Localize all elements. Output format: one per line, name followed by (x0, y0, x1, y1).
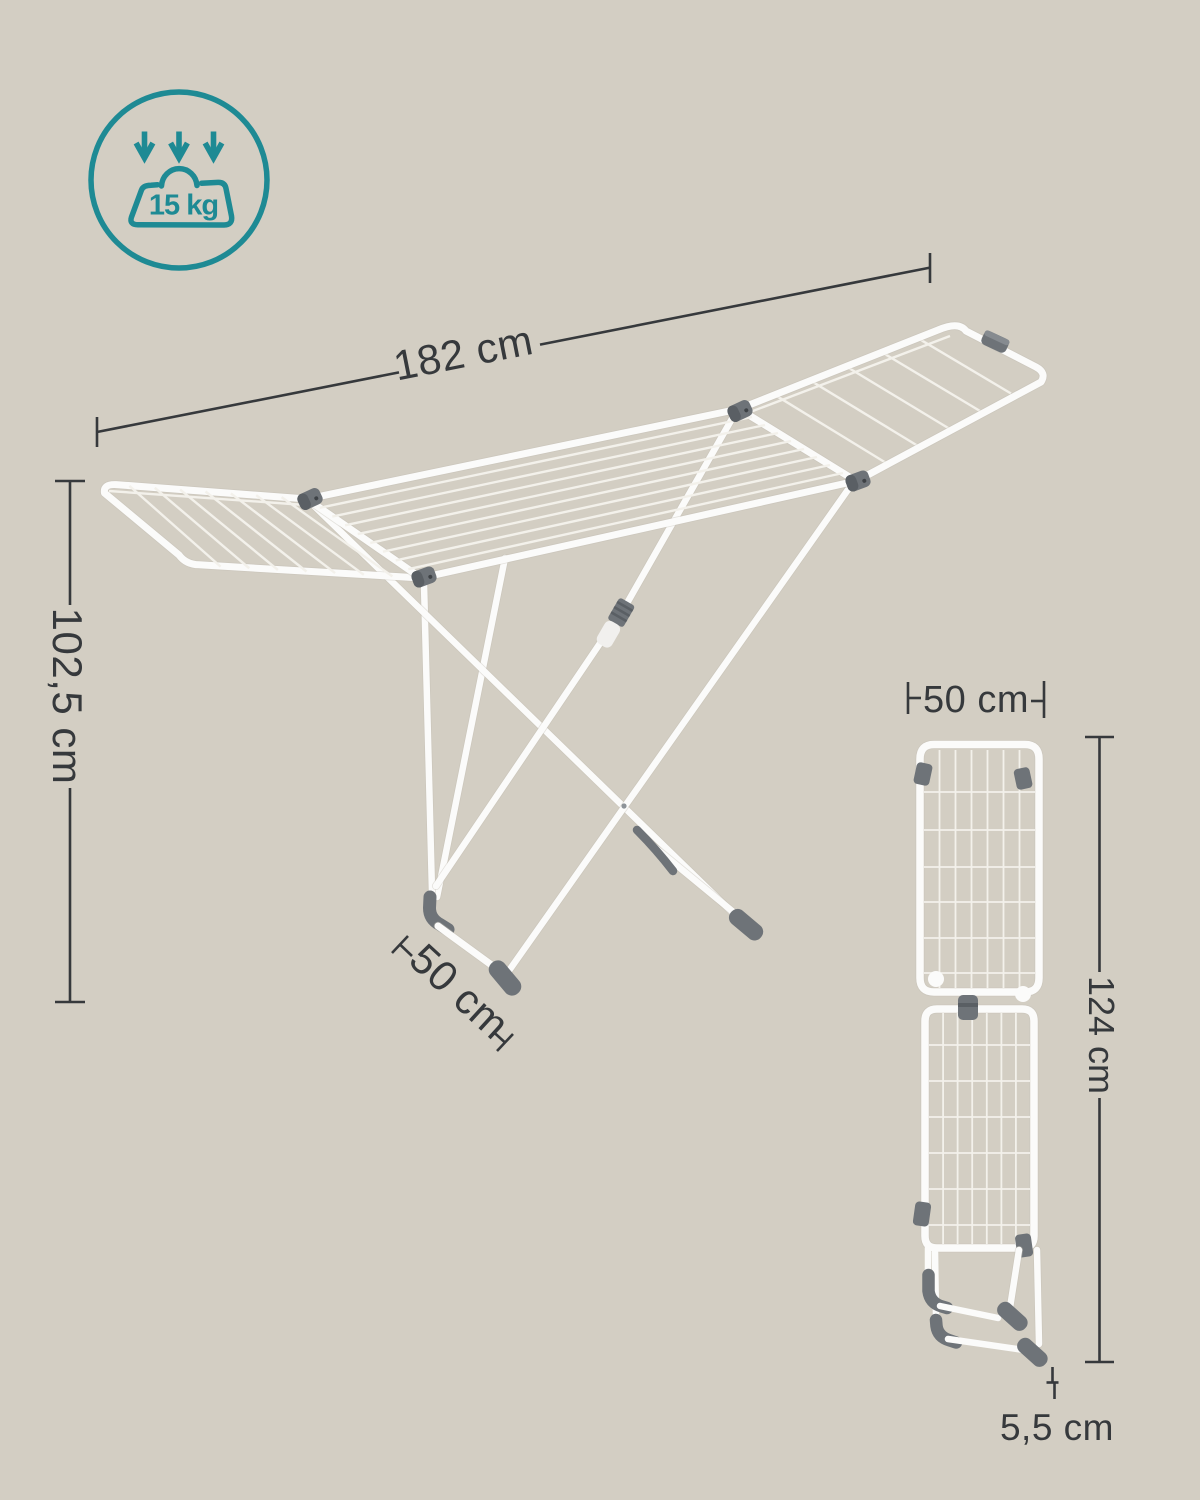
svg-text:124 cm: 124 cm (1081, 976, 1122, 1094)
svg-text:50 cm: 50 cm (923, 679, 1029, 721)
svg-text:15 kg: 15 kg (149, 190, 218, 222)
svg-text:102,5 cm: 102,5 cm (44, 608, 91, 785)
svg-text:5,5 cm: 5,5 cm (1000, 1407, 1114, 1448)
svg-text:182 cm: 182 cm (390, 316, 537, 389)
svg-text:50 cm: 50 cm (401, 935, 519, 1049)
